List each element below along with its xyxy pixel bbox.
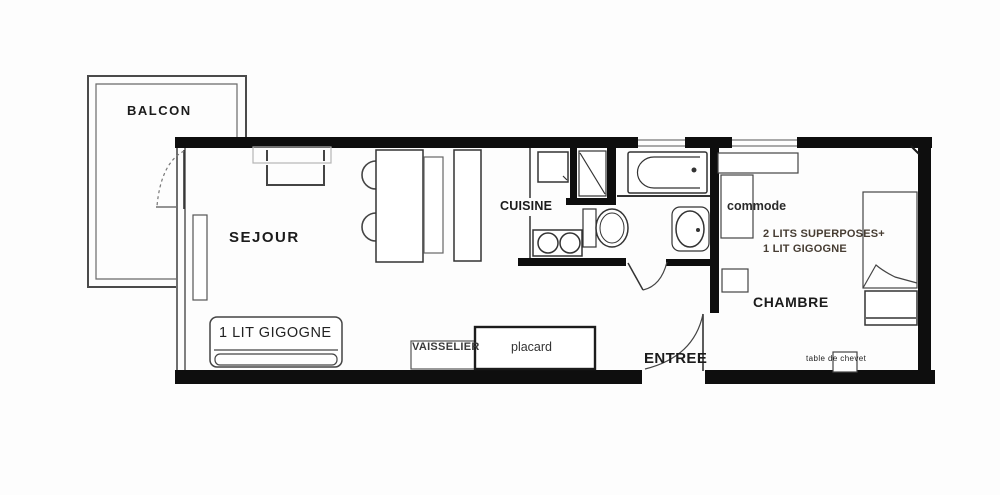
sofa-against-wall (253, 147, 331, 185)
bedroom-note-line2: 1 LIT GIGOGNE (763, 244, 847, 256)
washbasin (672, 207, 709, 251)
furniture-label-vaisselier: VAISSELIER (412, 342, 480, 354)
window-top-bathroom (638, 140, 685, 146)
room-label-sejour: SEJOUR (229, 230, 300, 246)
floor-plan: BALCON SEJOUR CUISINE commode 2 LITS SUP… (0, 0, 1000, 495)
room-label-entree: ENTREE (644, 351, 707, 367)
kitchen-sink (533, 230, 582, 256)
bunk-bed (718, 153, 798, 173)
furniture-label-sofa-bed: 1 LIT GIGOGNE (219, 326, 332, 341)
storage-unit (454, 150, 481, 261)
furniture-label-placard: placard (511, 341, 552, 354)
bedroom-note-line1: 2 LITS SUPERPOSES+ (763, 229, 885, 241)
stool (722, 269, 748, 292)
balcony-door (156, 150, 184, 209)
dining-table (376, 150, 443, 262)
toilet (583, 209, 628, 247)
dining-chairs (362, 161, 376, 241)
furniture-label-nightstand: table de chevet (806, 355, 866, 363)
utility-closet (579, 151, 606, 196)
floor-plan-drawing (0, 0, 1000, 495)
bathroom-door (628, 262, 667, 290)
bathtub (617, 152, 710, 196)
room-label-cuisine: CUISINE (500, 200, 552, 213)
single-bed (863, 192, 917, 325)
radiator (193, 215, 207, 300)
furniture-label-commode: commode (727, 200, 786, 213)
fridge (538, 152, 568, 182)
room-label-balcon: BALCON (127, 104, 192, 118)
window-top-bedroom (732, 140, 797, 146)
room-label-chambre: CHAMBRE (753, 295, 829, 310)
